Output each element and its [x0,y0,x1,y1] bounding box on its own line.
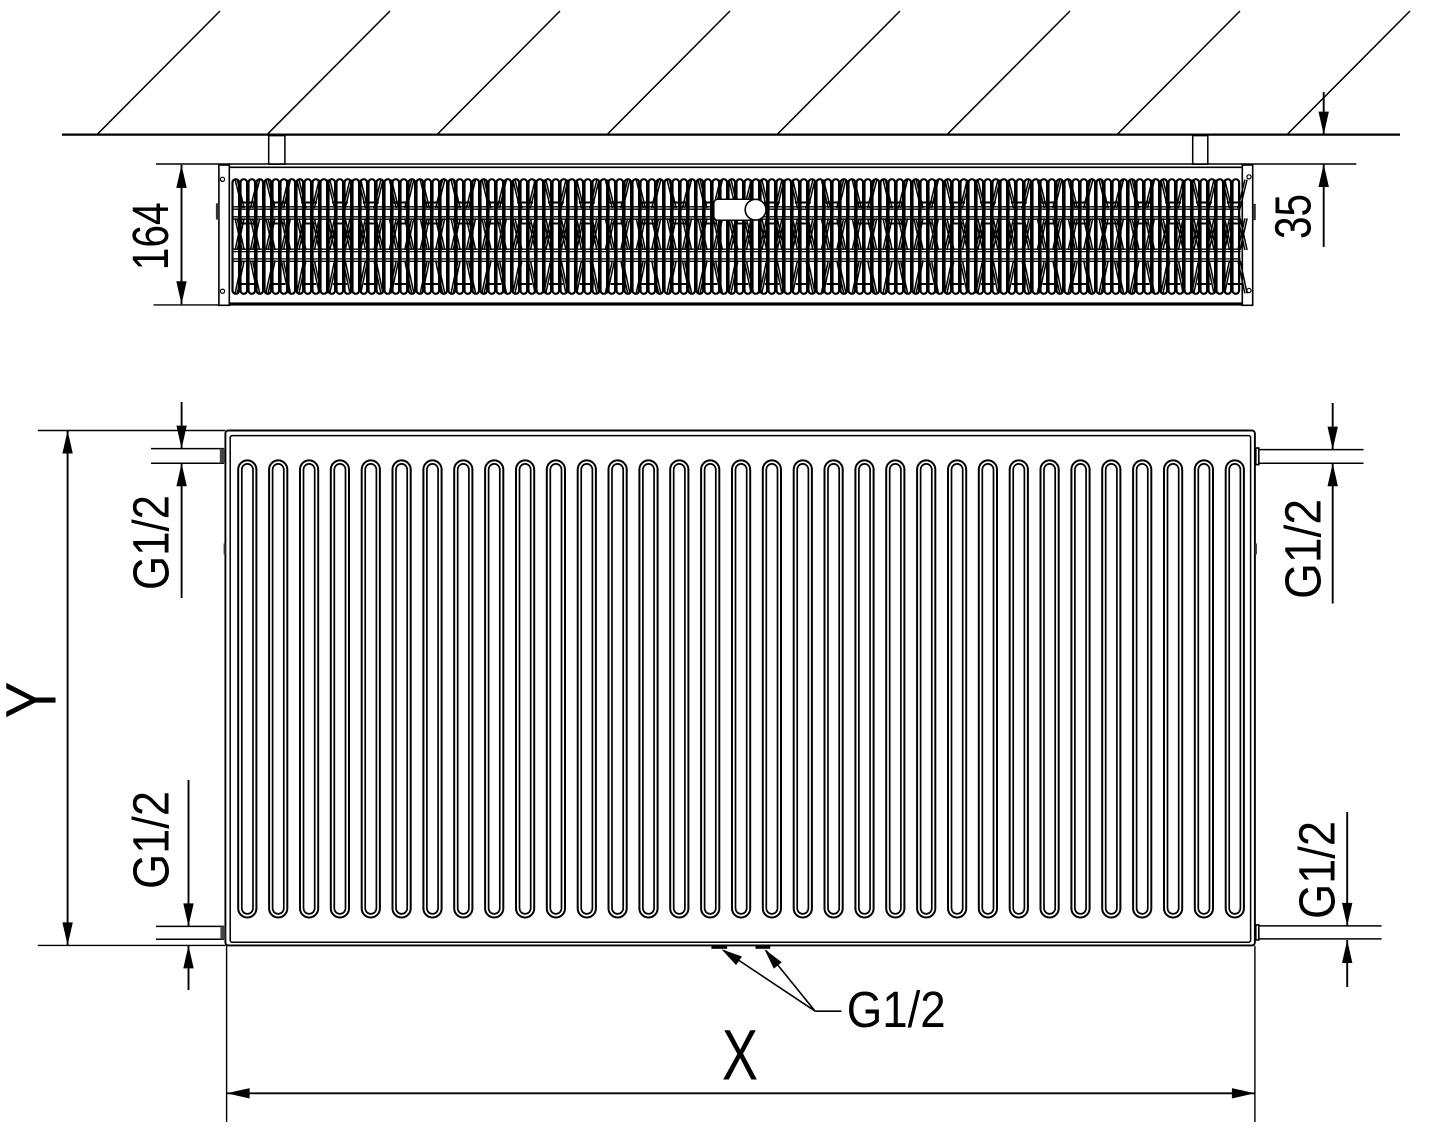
svg-text:G1/2: G1/2 [1289,821,1346,919]
svg-text:G1/2: G1/2 [123,791,180,889]
svg-text:35: 35 [1265,194,1322,239]
svg-text:Y: Y [0,682,72,719]
svg-text:G1/2: G1/2 [1275,499,1332,599]
svg-text:G1/2: G1/2 [847,981,946,1038]
svg-text:G1/2: G1/2 [123,495,180,590]
svg-text:164: 164 [122,202,179,270]
svg-text:X: X [722,1016,758,1095]
